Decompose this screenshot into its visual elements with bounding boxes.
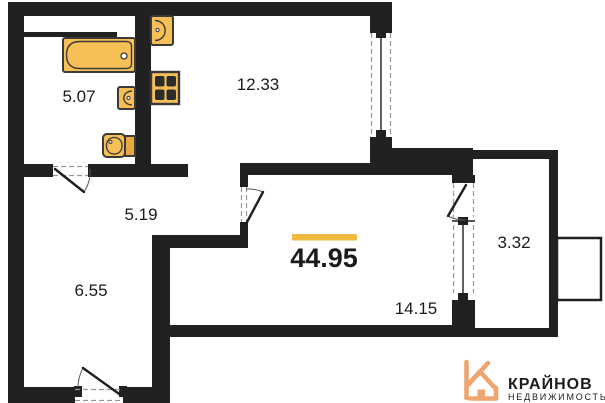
room-area-label-room: 6.55 — [74, 281, 107, 300]
room-area-label-hallway: 5.19 — [124, 205, 157, 224]
brand-name: КРАЙНОВ — [508, 374, 593, 393]
bathtub-icon — [63, 38, 135, 72]
entrance-door — [75, 368, 123, 401]
total-area-label: 44.95 — [290, 243, 358, 273]
room-area-label-kitchen: 12.33 — [237, 75, 280, 94]
stove-icon — [151, 72, 179, 104]
brand-logo: КРАЙНОВ НЕДВИЖИМОСТЬ — [467, 362, 605, 402]
floor-plan: 5.07 12.33 5.19 6.55 14.15 3.32 44.95 КР… — [0, 0, 605, 403]
bathroom-door — [53, 167, 90, 193]
balcony-shaft-box — [557, 238, 601, 300]
total-area-marker — [292, 234, 357, 241]
house-door-dot — [478, 390, 486, 399]
room-area-label-bathroom: 5.07 — [62, 87, 95, 106]
balcony-door — [448, 183, 474, 220]
balcony-window — [452, 221, 475, 295]
kitchen-sink-icon — [151, 16, 173, 45]
brand-subtitle: НЕДВИЖИМОСТЬ — [508, 392, 605, 402]
toilet-icon — [103, 134, 135, 157]
room-area-label-living-room: 14.15 — [395, 299, 438, 318]
bathroom-sink-icon — [118, 87, 135, 109]
living-room-door — [242, 187, 264, 224]
room-area-label-balcony: 3.32 — [497, 233, 530, 252]
kitchen-window — [372, 33, 391, 135]
floor-plan-page: 5.07 12.33 5.19 6.55 14.15 3.32 44.95 КР… — [0, 0, 605, 403]
